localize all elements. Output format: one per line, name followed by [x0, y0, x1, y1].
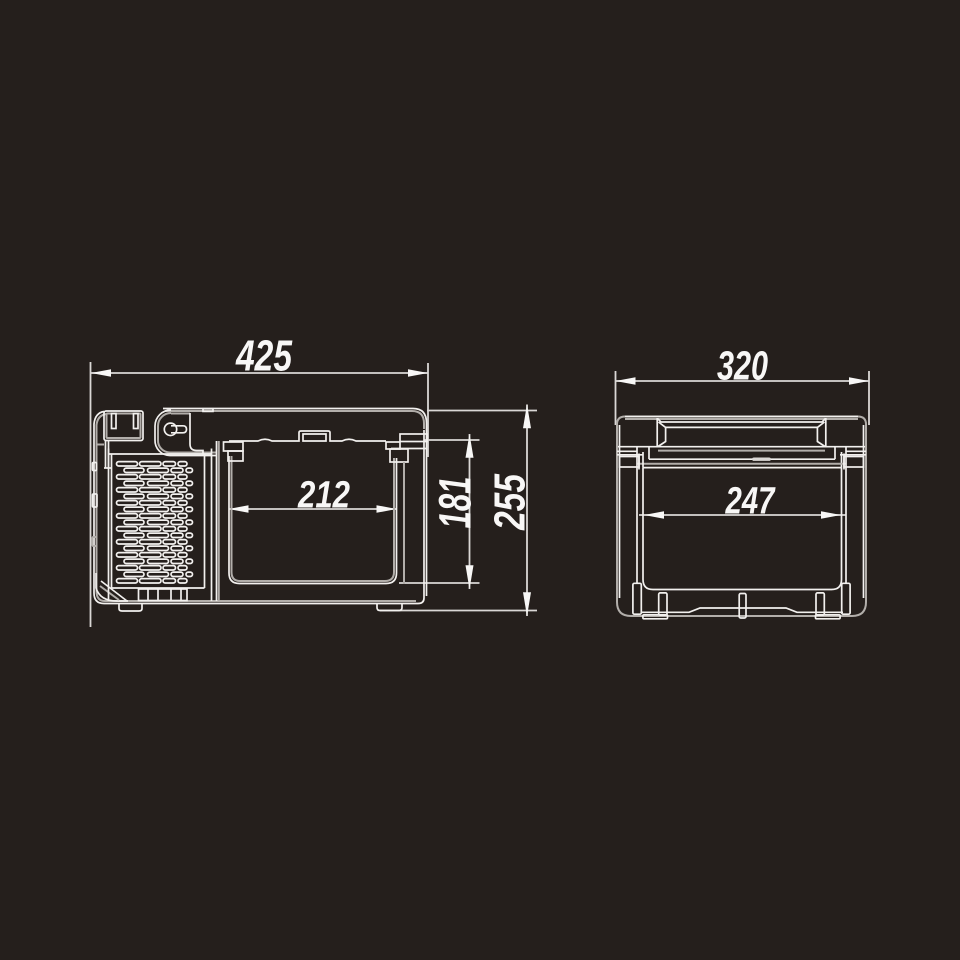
svg-text:181: 181	[430, 477, 481, 529]
svg-text:255: 255	[486, 474, 535, 531]
svg-text:425: 425	[235, 332, 292, 381]
svg-text:247: 247	[725, 481, 776, 523]
svg-text:320: 320	[717, 343, 768, 389]
svg-text:212: 212	[297, 475, 350, 517]
